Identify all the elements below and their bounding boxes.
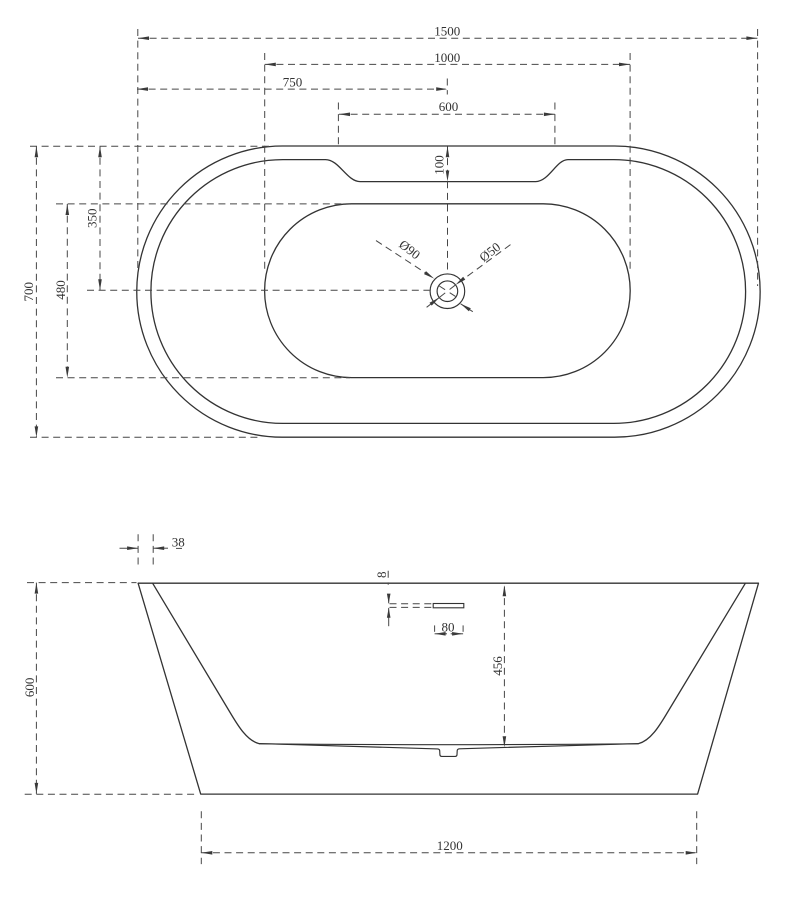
svg-text:750: 750	[283, 74, 303, 89]
svg-text:600: 600	[22, 678, 37, 698]
svg-text:8: 8	[374, 571, 389, 578]
svg-text:480: 480	[53, 280, 68, 300]
svg-text:456: 456	[490, 656, 505, 676]
svg-text:38: 38	[172, 535, 185, 550]
svg-text:100: 100	[431, 155, 446, 175]
svg-text:600: 600	[439, 99, 459, 114]
svg-text:700: 700	[21, 282, 36, 302]
svg-text:350: 350	[85, 208, 100, 228]
svg-text:1500: 1500	[434, 23, 460, 38]
svg-text:1200: 1200	[437, 838, 463, 853]
svg-text:1000: 1000	[434, 50, 460, 65]
svg-text:80: 80	[442, 620, 455, 635]
